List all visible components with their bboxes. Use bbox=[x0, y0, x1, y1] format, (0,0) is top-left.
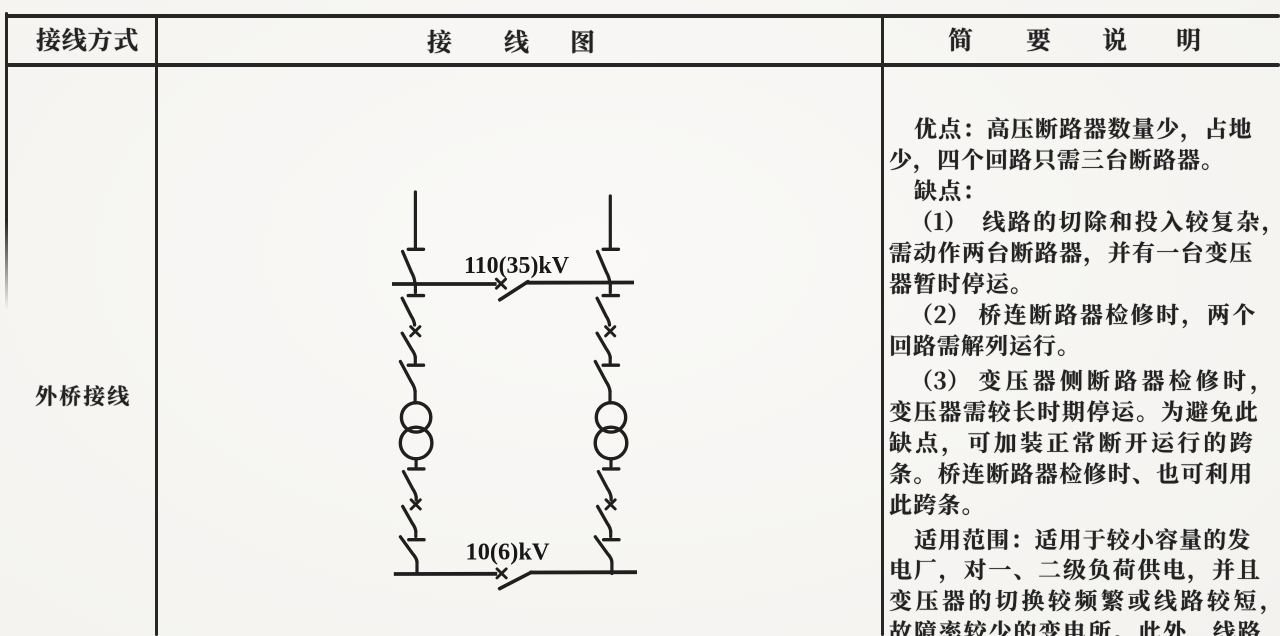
svg-text:110(35)kV: 110(35)kV bbox=[464, 253, 570, 279]
svg-text:10(6)kV: 10(6)kV bbox=[466, 540, 551, 566]
